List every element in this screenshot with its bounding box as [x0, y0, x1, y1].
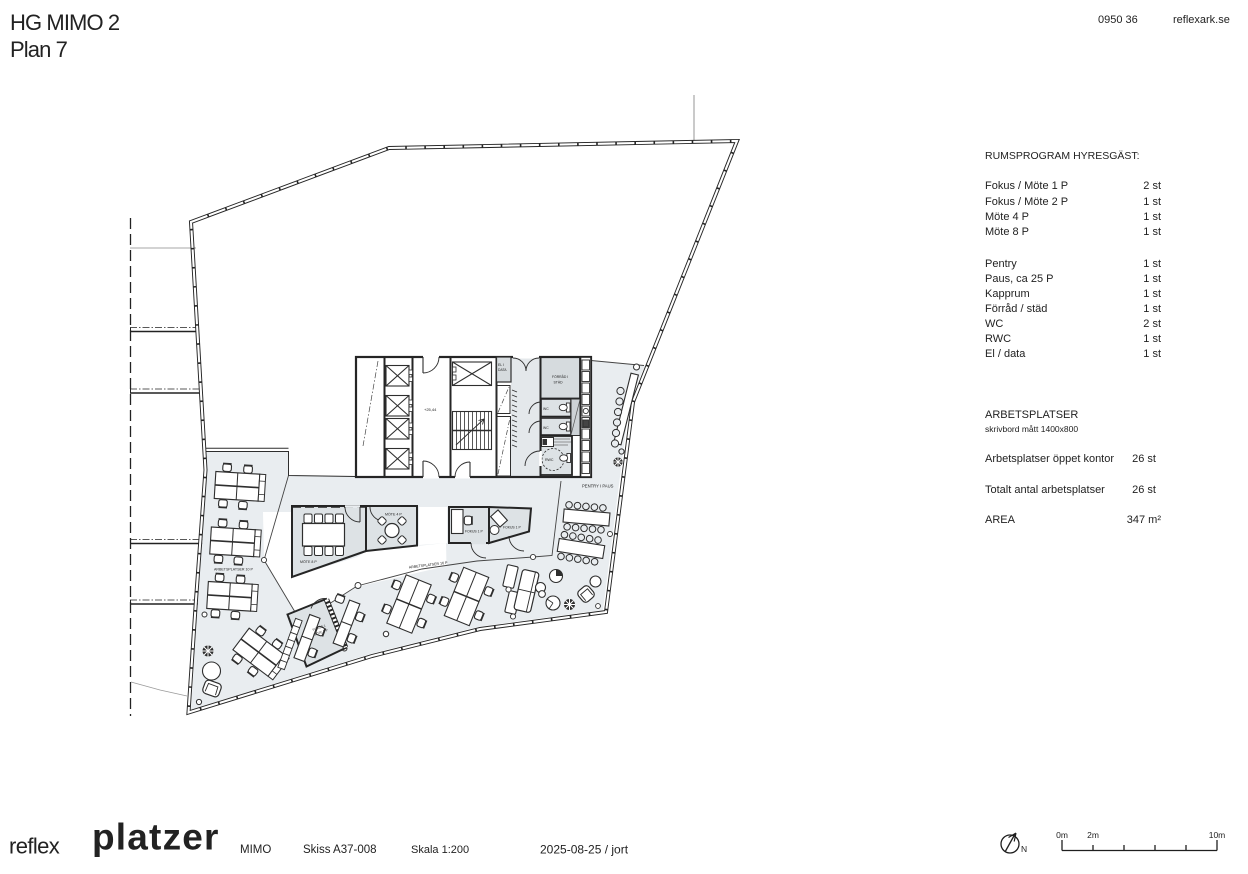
svg-text:Plan 7: Plan 7 [10, 37, 68, 62]
svg-text:MÖTE 4 P: MÖTE 4 P [385, 513, 402, 517]
svg-text:PENTRY I PAUS: PENTRY I PAUS [582, 484, 614, 489]
svg-text:ARBETSPLATSER 10 P: ARBETSPLATSER 10 P [214, 568, 253, 572]
svg-text:2m: 2m [1087, 830, 1099, 840]
svg-text:26 st: 26 st [1132, 484, 1156, 496]
svg-text:10m: 10m [1209, 830, 1226, 840]
svg-text:FOKUS 1 P: FOKUS 1 P [503, 526, 521, 530]
svg-text:RWC: RWC [545, 458, 554, 462]
svg-text:WC: WC [985, 318, 1003, 330]
svg-text:AREA: AREA [985, 514, 1016, 526]
svg-text:2025-08-25 / jort: 2025-08-25 / jort [540, 843, 629, 857]
svg-text:N: N [1021, 844, 1027, 854]
svg-text:0m: 0m [1056, 830, 1068, 840]
svg-text:ARBETSPLATSER: ARBETSPLATSER [985, 409, 1078, 421]
svg-text:Fokus / Möte 2 P: Fokus / Möte 2 P [985, 196, 1068, 208]
svg-text:+25,44: +25,44 [424, 407, 437, 412]
svg-text:1 st: 1 st [1143, 273, 1161, 285]
svg-text:0950 36: 0950 36 [1098, 14, 1138, 26]
svg-text:1 st: 1 st [1143, 226, 1161, 238]
svg-text:Möte 4 P: Möte 4 P [985, 211, 1029, 223]
svg-text:Paus, ca 25 P: Paus, ca 25 P [985, 273, 1054, 285]
svg-text:Arbetsplatser öppet kontor: Arbetsplatser öppet kontor [985, 453, 1114, 465]
svg-text:Fokus / Möte 1 P: Fokus / Möte 1 P [985, 180, 1068, 192]
svg-text:STÄD: STÄD [554, 381, 564, 385]
svg-text:Skala 1:200: Skala 1:200 [411, 844, 469, 856]
svg-text:WC: WC [543, 426, 549, 430]
svg-text:skrivbord mått 1400x800: skrivbord mått 1400x800 [985, 424, 1078, 434]
svg-text:2 st: 2 st [1143, 180, 1161, 192]
svg-text:HG MIMO 2: HG MIMO 2 [10, 10, 120, 35]
svg-text:FÖRRÅD I: FÖRRÅD I [552, 374, 568, 379]
svg-text:Möte 8 P: Möte 8 P [985, 226, 1029, 238]
svg-text:El / data: El / data [985, 348, 1026, 360]
svg-text:1 st: 1 st [1143, 348, 1161, 360]
svg-text:Totalt antal arbetsplatser: Totalt antal arbetsplatser [985, 484, 1105, 496]
svg-text:reflex: reflex [9, 834, 60, 859]
svg-text:1 st: 1 st [1143, 333, 1161, 345]
svg-text:platzer: platzer [92, 817, 220, 858]
svg-text:1 st: 1 st [1143, 288, 1161, 300]
svg-text:1 st: 1 st [1143, 258, 1161, 270]
svg-text:Skiss A37-008: Skiss A37-008 [303, 844, 377, 856]
svg-text:RUMSPROGRAM HYRESGÄST:: RUMSPROGRAM HYRESGÄST: [985, 150, 1140, 162]
svg-text:1 st: 1 st [1143, 211, 1161, 223]
svg-text:347 m²: 347 m² [1127, 514, 1162, 526]
svg-text:Förråd / städ: Förråd / städ [985, 303, 1047, 315]
svg-text:2 st: 2 st [1143, 318, 1161, 330]
svg-text:1 st: 1 st [1143, 303, 1161, 315]
svg-text:Pentry: Pentry [985, 258, 1017, 270]
svg-text:MÖTE 8 P: MÖTE 8 P [300, 560, 317, 564]
svg-text:WC: WC [543, 407, 549, 411]
svg-text:RWC: RWC [985, 333, 1011, 345]
svg-text:26 st: 26 st [1132, 453, 1156, 465]
svg-text:FOKUS 1 P: FOKUS 1 P [465, 530, 483, 534]
svg-text:MIMO: MIMO [240, 844, 271, 856]
svg-text:DATA: DATA [498, 368, 507, 372]
svg-text:EL I: EL I [498, 363, 504, 367]
svg-text:Kapprum: Kapprum [985, 288, 1030, 300]
svg-text:reflexark.se: reflexark.se [1173, 14, 1230, 26]
svg-text:1 st: 1 st [1143, 196, 1161, 208]
